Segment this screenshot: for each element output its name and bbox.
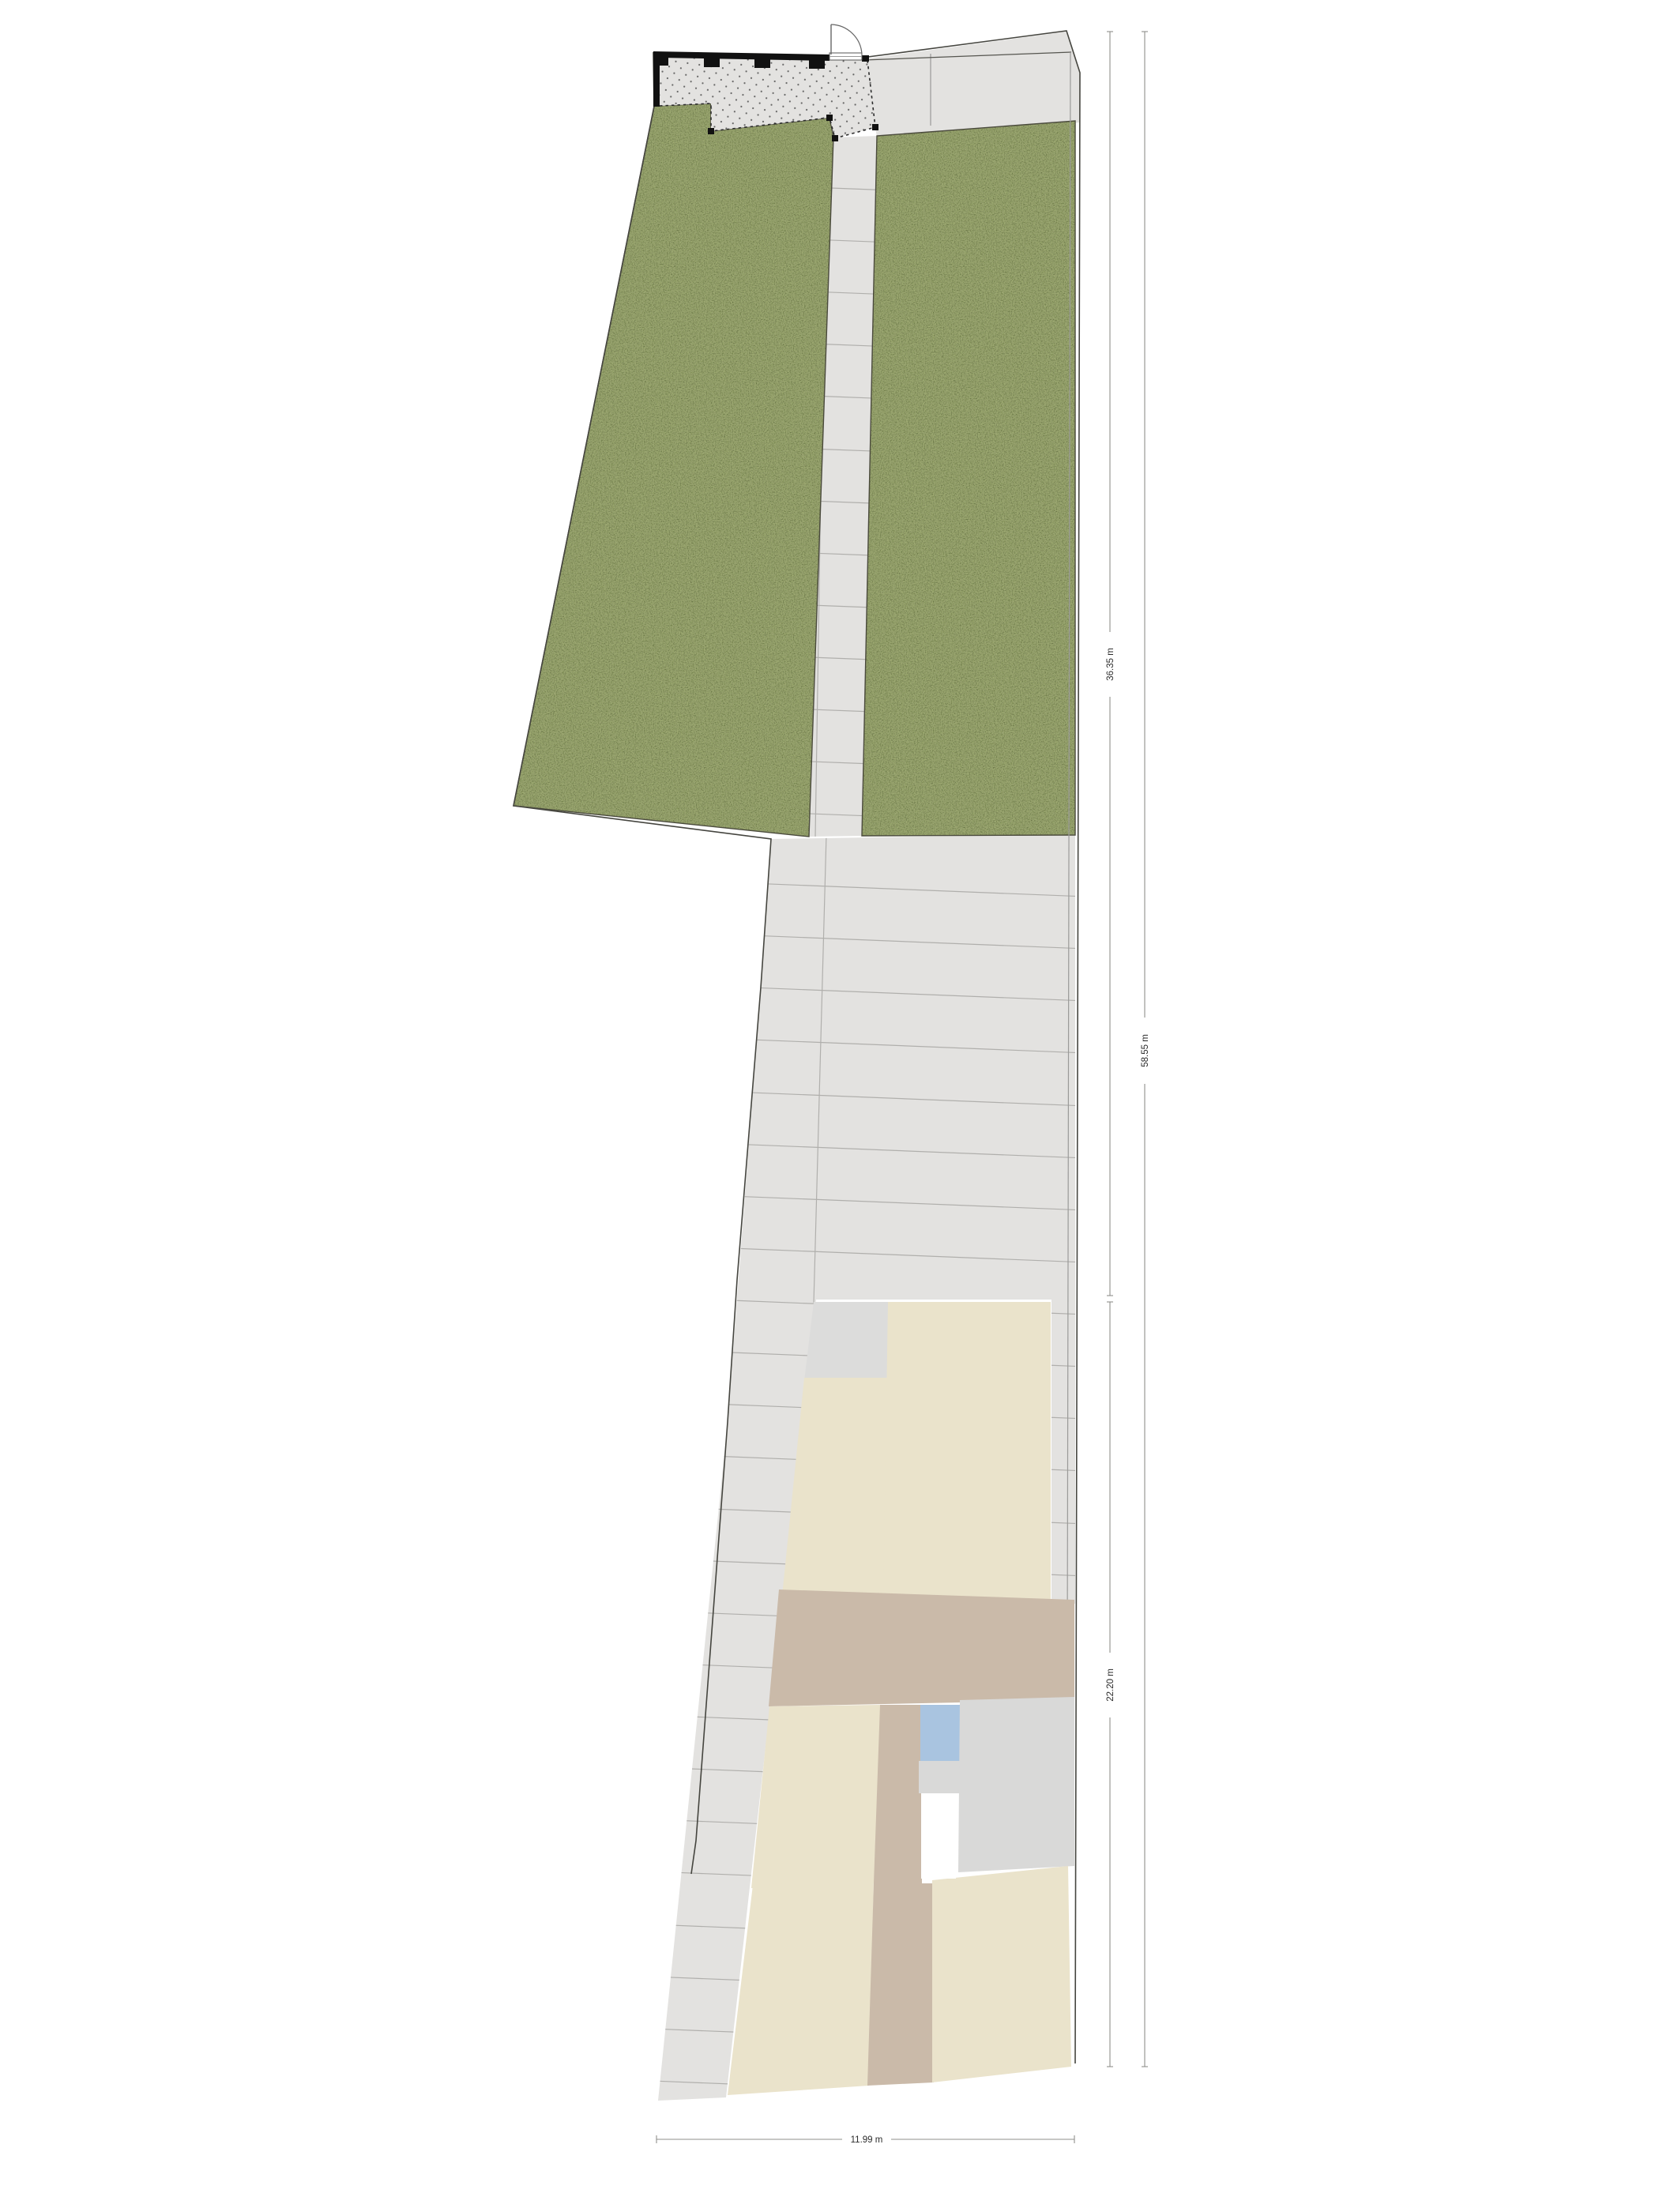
svg-text:22.20 m: 22.20 m: [1106, 1668, 1115, 1702]
svg-text:11.99 m: 11.99 m: [851, 2135, 883, 2145]
svg-text:36.35 m: 36.35 m: [1106, 648, 1115, 681]
svg-text:58.55 m: 58.55 m: [1141, 1034, 1150, 1067]
